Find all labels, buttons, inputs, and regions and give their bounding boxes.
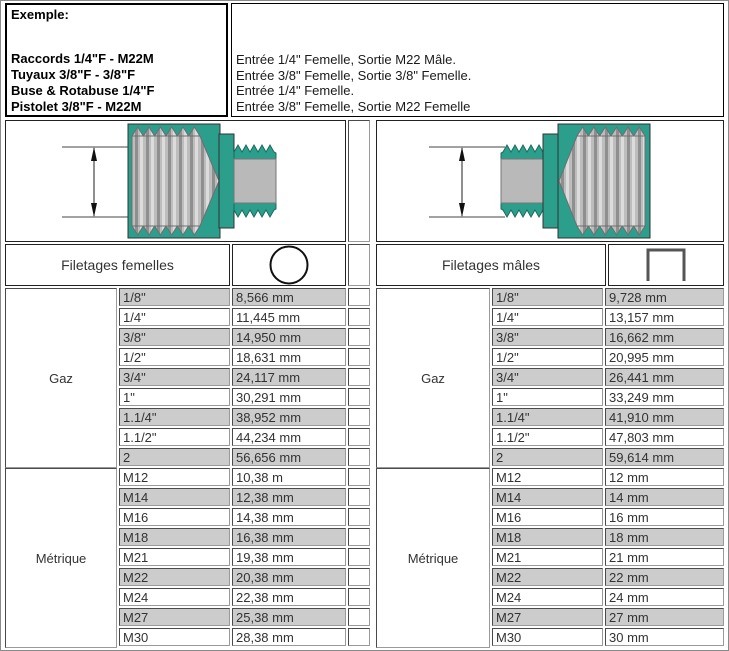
- diameter-cell: 20,995 mm: [605, 348, 724, 366]
- diameter-cell: 38,952 mm: [232, 408, 346, 426]
- male-threads-half: Filetages mâles Gaz 1/8"9,728 mm 1/4"13,…: [376, 120, 724, 648]
- thread-size-cell: M24: [119, 588, 230, 606]
- example-box: Exemple: Raccords 1/4"F - M22M Tuyaux 3/…: [5, 3, 228, 117]
- diameter-cell: 16 mm: [605, 508, 724, 526]
- diameter-cell: 28,38 mm: [232, 628, 346, 646]
- diameter-cell: 8,566 mm: [232, 288, 346, 306]
- table-row: 1.1/2"44,234 mm: [119, 428, 370, 446]
- thread-size-cell: M16: [492, 508, 603, 526]
- table-row: M1412,38 mm: [119, 488, 370, 506]
- filler-cell: [348, 388, 370, 406]
- diameter-cell: 16,662 mm: [605, 328, 724, 346]
- filler-cell: [348, 408, 370, 426]
- table-row: 259,614 mm: [492, 448, 724, 466]
- thread-size-cell: 1.1/2": [492, 428, 603, 446]
- male-symbol-cell: [608, 244, 724, 286]
- filler-cell: [348, 120, 370, 242]
- table-row: 1/8"9,728 mm: [492, 288, 724, 306]
- female-fitting-svg: [6, 121, 345, 241]
- diameter-cell: 27 mm: [605, 608, 724, 626]
- diameter-cell: 14,38 mm: [232, 508, 346, 526]
- table-row: M2220,38 mm: [119, 568, 370, 586]
- filler-cell: [348, 488, 370, 506]
- gaz-label: Gaz: [376, 288, 490, 468]
- table-row: 1/4"13,157 mm: [492, 308, 724, 326]
- table-row: M1614,38 mm: [119, 508, 370, 526]
- table-row: 3/4"26,441 mm: [492, 368, 724, 386]
- table-row: 1/4"11,445 mm: [119, 308, 370, 326]
- table-row: M2119,38 mm: [119, 548, 370, 566]
- female-header-row: Filetages femelles: [5, 244, 370, 286]
- thread-size-cell: 3/4": [492, 368, 603, 386]
- description-box: Entrée 1/4" Femelle, Sortie M22 Mâle. En…: [231, 3, 724, 117]
- male-drawing-row: [376, 120, 724, 242]
- metrique-label: Métrique: [376, 468, 490, 648]
- thread-size-cell: 1.1/4": [119, 408, 230, 426]
- thread-size-cell: 1/2": [119, 348, 230, 366]
- table-row: 1.1/4"41,910 mm: [492, 408, 724, 426]
- description-line: Entrée 3/8" Femelle, Sortie M22 Femelle: [236, 99, 719, 115]
- tables-area: Filetages femelles Gaz 1/8"8,566 mm 1/4"…: [5, 120, 724, 648]
- filler-cell: [348, 548, 370, 566]
- table-row: 1"33,249 mm: [492, 388, 724, 406]
- thread-size-cell: M22: [492, 568, 603, 586]
- diameter-cell: 18 mm: [605, 528, 724, 546]
- filler-cell: [348, 608, 370, 626]
- diameter-cell: 24,117 mm: [232, 368, 346, 386]
- diameter-cell: 47,803 mm: [605, 428, 724, 446]
- male-fitting-drawing: [376, 120, 724, 242]
- filler-cell: [348, 628, 370, 646]
- diameter-cell: 41,910 mm: [605, 408, 724, 426]
- thread-size-cell: 3/8": [119, 328, 230, 346]
- diameter-cell: 22 mm: [605, 568, 724, 586]
- diameter-cell: 56,656 mm: [232, 448, 346, 466]
- gaz-label: Gaz: [5, 288, 117, 468]
- thread-size-cell: M27: [119, 608, 230, 626]
- thread-size-cell: M30: [119, 628, 230, 646]
- diameter-cell: 18,631 mm: [232, 348, 346, 366]
- diameter-cell: 25,38 mm: [232, 608, 346, 626]
- filler-cell: [348, 448, 370, 466]
- example-line: Buse & Rotabuse 1/4"F: [11, 83, 222, 99]
- thread-size-cell: 1.1/2": [119, 428, 230, 446]
- open-square-icon: [644, 247, 688, 283]
- table-row: M2422,38 mm: [119, 588, 370, 606]
- circle-icon: [267, 245, 311, 285]
- example-title: Exemple:: [11, 7, 222, 23]
- table-row: 1.1/2"47,803 mm: [492, 428, 724, 446]
- diameter-cell: 26,441 mm: [605, 368, 724, 386]
- male-fitting-svg: [377, 121, 723, 241]
- diameter-cell: 14,950 mm: [232, 328, 346, 346]
- male-gaz-section: Gaz 1/8"9,728 mm 1/4"13,157 mm 3/8"16,66…: [376, 288, 724, 468]
- table-row: M2121 mm: [492, 548, 724, 566]
- filler-cell: [348, 468, 370, 486]
- thread-size-cell: 2: [492, 448, 603, 466]
- female-gaz-rows: 1/8"8,566 mm 1/4"11,445 mm 3/8"14,950 mm…: [119, 288, 370, 468]
- thread-size-cell: M18: [492, 528, 603, 546]
- diameter-cell: 30,291 mm: [232, 388, 346, 406]
- table-row: 1/8"8,566 mm: [119, 288, 370, 306]
- male-threads-header: Filetages mâles: [376, 244, 606, 286]
- table-row: M2222 mm: [492, 568, 724, 586]
- table-row: 1/2"18,631 mm: [119, 348, 370, 366]
- example-line: Pistolet 3/8"F - M22M: [11, 99, 222, 115]
- thread-size-cell: M21: [492, 548, 603, 566]
- table-row: 1/2"20,995 mm: [492, 348, 724, 366]
- example-line: Tuyaux 3/8"F - 3/8"F: [11, 67, 222, 83]
- diameter-cell: 30 mm: [605, 628, 724, 646]
- thread-size-cell: 3/8": [492, 328, 603, 346]
- male-metrique-section: Métrique M1212 mm M1414 mm M1616 mm M181…: [376, 468, 724, 648]
- thread-size-cell: 2: [119, 448, 230, 466]
- female-gaz-section: Gaz 1/8"8,566 mm 1/4"11,445 mm 3/8"14,95…: [5, 288, 370, 468]
- thread-size-cell: M14: [492, 488, 603, 506]
- diameter-cell: 13,157 mm: [605, 308, 724, 326]
- diameter-cell: 24 mm: [605, 588, 724, 606]
- diameter-cell: 19,38 mm: [232, 548, 346, 566]
- thread-size-cell: 1": [119, 388, 230, 406]
- diameter-cell: 33,249 mm: [605, 388, 724, 406]
- dimension-arrow: [62, 147, 137, 217]
- diameter-cell: 11,445 mm: [232, 308, 346, 326]
- table-row: M3028,38 mm: [119, 628, 370, 646]
- description-line: Entrée 1/4" Femelle.: [236, 83, 719, 99]
- thread-size-cell: M24: [492, 588, 603, 606]
- diameter-cell: 14 mm: [605, 488, 724, 506]
- thread-conversion-page: Exemple: Raccords 1/4"F - M22M Tuyaux 3/…: [0, 0, 729, 651]
- thread-size-cell: M21: [119, 548, 230, 566]
- thread-size-cell: M14: [119, 488, 230, 506]
- table-row: M3030 mm: [492, 628, 724, 646]
- filler-cell: [348, 588, 370, 606]
- filler-cell: [348, 288, 370, 306]
- table-row: M1616 mm: [492, 508, 724, 526]
- thread-size-cell: M30: [492, 628, 603, 646]
- female-drawing-row: [5, 120, 370, 242]
- table-row: M2424 mm: [492, 588, 724, 606]
- female-symbol-cell: [232, 244, 346, 286]
- table-row: M1414 mm: [492, 488, 724, 506]
- table-row: M1212 mm: [492, 468, 724, 486]
- thread-size-cell: M12: [119, 468, 230, 486]
- male-metrique-rows: M1212 mm M1414 mm M1616 mm M1818 mm M212…: [492, 468, 724, 648]
- table-row: 1.1/4"38,952 mm: [119, 408, 370, 426]
- filler-cell: [348, 328, 370, 346]
- thread-size-cell: M27: [492, 608, 603, 626]
- table-row: M2725,38 mm: [119, 608, 370, 626]
- table-row: 3/4"24,117 mm: [119, 368, 370, 386]
- thread-size-cell: 1/2": [492, 348, 603, 366]
- diameter-cell: 10,38 m: [232, 468, 346, 486]
- diameter-cell: 16,38 mm: [232, 528, 346, 546]
- filler-cell: [348, 428, 370, 446]
- diameter-cell: 21 mm: [605, 548, 724, 566]
- female-metrique-section: Métrique M1210,38 m M1412,38 mm M1614,38…: [5, 468, 370, 648]
- table-row: 256,656 mm: [119, 448, 370, 466]
- filler-cell: [348, 528, 370, 546]
- female-metrique-rows: M1210,38 m M1412,38 mm M1614,38 mm M1816…: [119, 468, 370, 648]
- filler-cell: [348, 368, 370, 386]
- thread-size-cell: 1.1/4": [492, 408, 603, 426]
- diameter-cell: 20,38 mm: [232, 568, 346, 586]
- table-row: M1818 mm: [492, 528, 724, 546]
- diameter-cell: 12,38 mm: [232, 488, 346, 506]
- thread-size-cell: 1/8": [119, 288, 230, 306]
- description-line: Entrée 3/8" Femelle, Sortie 3/8" Femelle…: [236, 68, 719, 84]
- spacer: [11, 23, 222, 51]
- male-header-row: Filetages mâles: [376, 244, 724, 286]
- female-threads-header: Filetages femelles: [5, 244, 230, 286]
- example-line: Raccords 1/4"F - M22M: [11, 51, 222, 67]
- thread-size-cell: M12: [492, 468, 603, 486]
- dimension-arrow: [429, 147, 505, 217]
- thread-size-cell: M22: [119, 568, 230, 586]
- table-row: 3/8"14,950 mm: [119, 328, 370, 346]
- female-threads-half: Filetages femelles Gaz 1/8"8,566 mm 1/4"…: [5, 120, 370, 648]
- filler-cell: [348, 244, 370, 286]
- table-row: 3/8"16,662 mm: [492, 328, 724, 346]
- thread-size-cell: 1/4": [119, 308, 230, 326]
- table-row: M1210,38 m: [119, 468, 370, 486]
- metrique-label: Métrique: [5, 468, 117, 648]
- diameter-cell: 9,728 mm: [605, 288, 724, 306]
- thread-size-cell: M18: [119, 528, 230, 546]
- top-row: Exemple: Raccords 1/4"F - M22M Tuyaux 3/…: [5, 3, 724, 117]
- thread-size-cell: M16: [119, 508, 230, 526]
- filler-cell: [348, 508, 370, 526]
- table-row: M1816,38 mm: [119, 528, 370, 546]
- description-line: Entrée 1/4" Femelle, Sortie M22 Mâle.: [236, 52, 719, 68]
- diameter-cell: 12 mm: [605, 468, 724, 486]
- table-row: M2727 mm: [492, 608, 724, 626]
- thread-size-cell: 1/4": [492, 308, 603, 326]
- filler-cell: [348, 308, 370, 326]
- table-row: 1"30,291 mm: [119, 388, 370, 406]
- filler-cell: [348, 568, 370, 586]
- female-fitting-drawing: [5, 120, 346, 242]
- diameter-cell: 59,614 mm: [605, 448, 724, 466]
- thread-size-cell: 1": [492, 388, 603, 406]
- thread-size-cell: 3/4": [119, 368, 230, 386]
- diameter-cell: 22,38 mm: [232, 588, 346, 606]
- male-gaz-rows: 1/8"9,728 mm 1/4"13,157 mm 3/8"16,662 mm…: [492, 288, 724, 468]
- diameter-cell: 44,234 mm: [232, 428, 346, 446]
- filler-cell: [348, 348, 370, 366]
- thread-size-cell: 1/8": [492, 288, 603, 306]
